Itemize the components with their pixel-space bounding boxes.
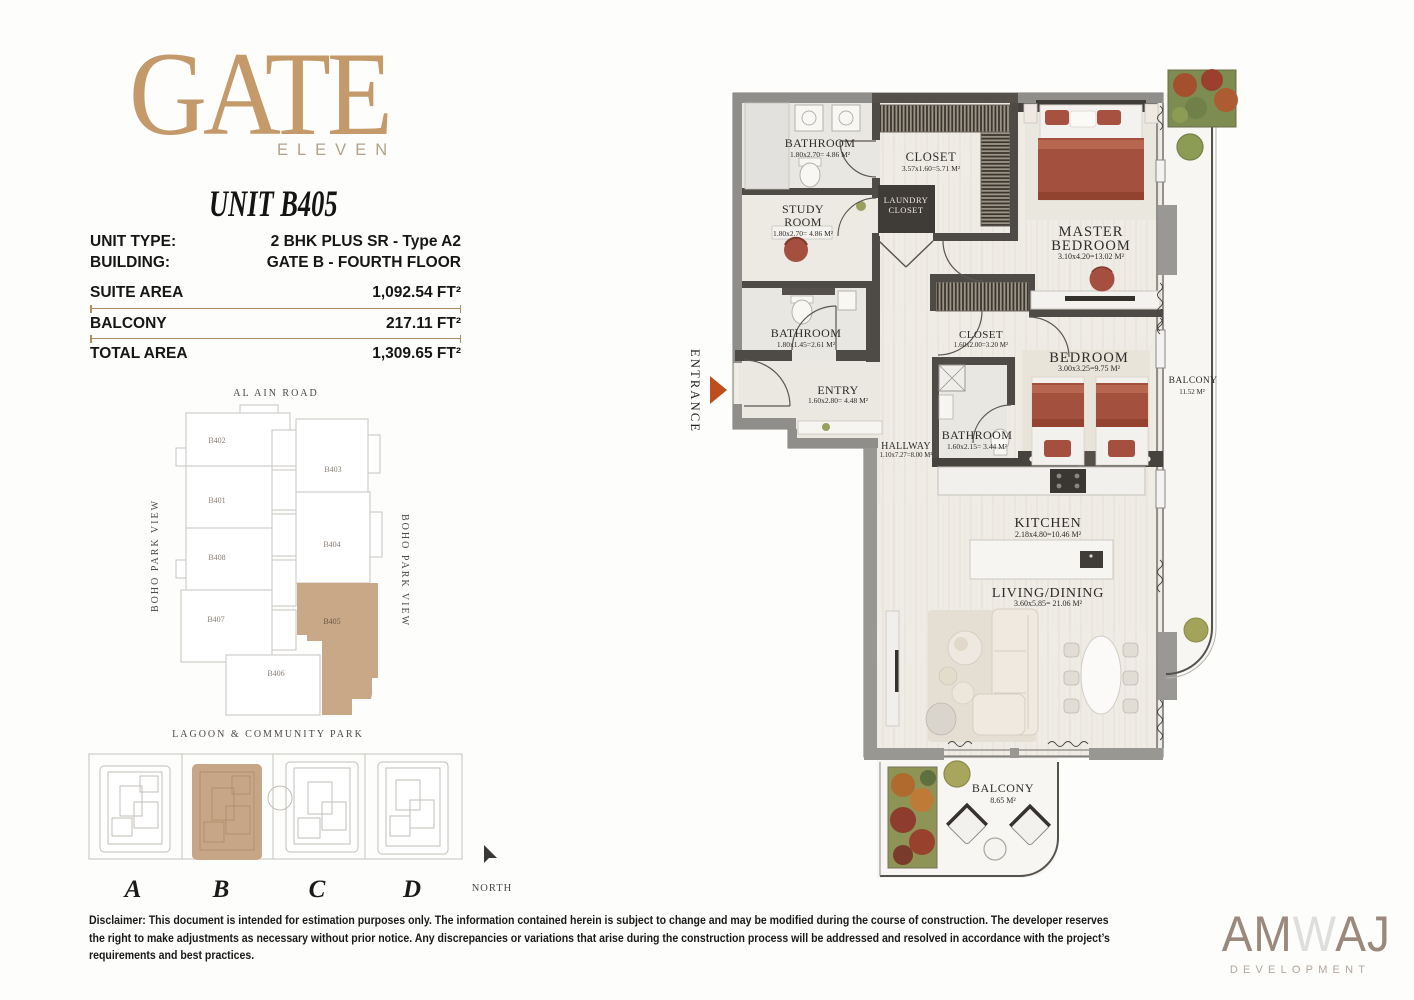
svg-text:B406: B406 bbox=[267, 669, 284, 678]
svg-text:B: B bbox=[212, 876, 230, 903]
svg-text:BOHO PARK VIEW: BOHO PARK VIEW bbox=[399, 514, 410, 627]
svg-text:B405: B405 bbox=[323, 617, 340, 626]
svg-text:A: A bbox=[123, 876, 142, 903]
svg-text:LAUNDRY: LAUNDRY bbox=[884, 195, 929, 205]
svg-text:BATHROOM: BATHROOM bbox=[785, 136, 856, 150]
svg-text:B404: B404 bbox=[323, 540, 340, 549]
svg-text:ENTRY: ENTRY bbox=[817, 383, 858, 397]
svg-text:CLOSET: CLOSET bbox=[906, 150, 957, 164]
svg-text:1.60x2.80= 4.48 M²: 1.60x2.80= 4.48 M² bbox=[808, 396, 869, 405]
svg-text:CLOSET: CLOSET bbox=[959, 329, 1003, 341]
svg-text:BATHROOM: BATHROOM bbox=[771, 326, 842, 340]
svg-text:BATHROOM: BATHROOM bbox=[942, 428, 1013, 442]
svg-text:3.00x3.25=9.75 M²: 3.00x3.25=9.75 M² bbox=[1058, 364, 1121, 373]
svg-text:HALLWAY: HALLWAY bbox=[881, 441, 931, 452]
svg-text:B401: B401 bbox=[208, 496, 225, 505]
svg-text:11.52 M²: 11.52 M² bbox=[1179, 388, 1205, 396]
svg-text:B407: B407 bbox=[207, 615, 224, 624]
svg-text:B408: B408 bbox=[208, 553, 225, 562]
svg-text:ROOM: ROOM bbox=[784, 215, 822, 229]
svg-text:C: C bbox=[309, 876, 326, 903]
svg-text:D: D bbox=[402, 876, 421, 903]
svg-text:3.10x4.20=13.02 M²: 3.10x4.20=13.02 M² bbox=[1058, 252, 1125, 261]
svg-text:1.80x1.45=2.61 M²: 1.80x1.45=2.61 M² bbox=[777, 340, 836, 349]
svg-text:1.80x2.70= 4.86 M²: 1.80x2.70= 4.86 M² bbox=[790, 150, 851, 159]
svg-text:B402: B402 bbox=[208, 436, 225, 445]
svg-text:NORTH: NORTH bbox=[472, 883, 513, 894]
svg-text:STUDY: STUDY bbox=[782, 202, 824, 216]
svg-text:B403: B403 bbox=[324, 465, 341, 474]
svg-text:BALCONY: BALCONY bbox=[972, 781, 1034, 795]
svg-text:2.18x4.80=10.46 M²: 2.18x4.80=10.46 M² bbox=[1015, 530, 1082, 539]
svg-text:LAGOON & COMMUNITY PARK: LAGOON & COMMUNITY PARK bbox=[172, 729, 364, 740]
svg-text:AL AIN ROAD: AL AIN ROAD bbox=[233, 388, 319, 399]
svg-text:3.60x5.85= 21.06 M²: 3.60x5.85= 21.06 M² bbox=[1014, 599, 1083, 608]
svg-text:ENTRANCE: ENTRANCE bbox=[688, 349, 702, 433]
svg-text:8.65 M²: 8.65 M² bbox=[990, 796, 1016, 805]
svg-text:1.60x2.15= 3.44 M²: 1.60x2.15= 3.44 M² bbox=[947, 442, 1008, 451]
svg-text:1.10x7.27=8.00 M²: 1.10x7.27=8.00 M² bbox=[880, 452, 933, 459]
svg-text:1.80x2.70= 4.86 M²: 1.80x2.70= 4.86 M² bbox=[773, 229, 834, 238]
svg-text:KITCHEN: KITCHEN bbox=[1014, 516, 1081, 531]
svg-text:3.57x1.60=5.71 M²: 3.57x1.60=5.71 M² bbox=[902, 164, 961, 173]
svg-text:1.60x2.00=3.20 M²: 1.60x2.00=3.20 M² bbox=[954, 341, 1008, 349]
svg-text:BOHO PARK VIEW: BOHO PARK VIEW bbox=[150, 499, 161, 612]
svg-text:BALCONY: BALCONY bbox=[1169, 376, 1218, 386]
svg-text:CLOSET: CLOSET bbox=[888, 205, 923, 215]
